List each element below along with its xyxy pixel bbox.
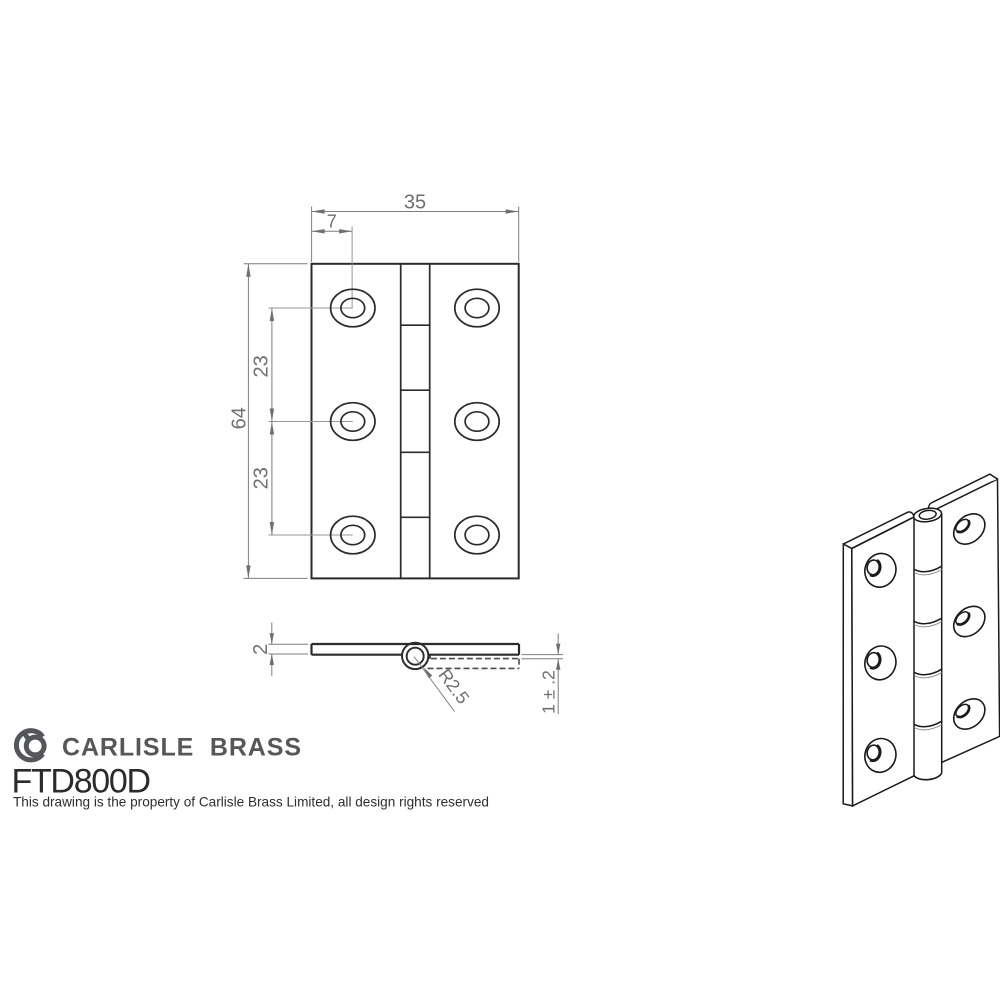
svg-text:This drawing is the property o: This drawing is the property of Carlisle…: [13, 795, 489, 810]
svg-text:CARLISLE BRASS: CARLISLE BRASS: [62, 733, 302, 761]
svg-text:1 ± .2: 1 ± .2: [539, 670, 559, 714]
svg-text:64: 64: [229, 407, 251, 429]
svg-text:23: 23: [250, 467, 272, 489]
svg-text:23: 23: [250, 355, 272, 377]
svg-text:2: 2: [250, 644, 272, 655]
svg-text:7: 7: [327, 212, 337, 232]
svg-text:35: 35: [404, 192, 426, 214]
